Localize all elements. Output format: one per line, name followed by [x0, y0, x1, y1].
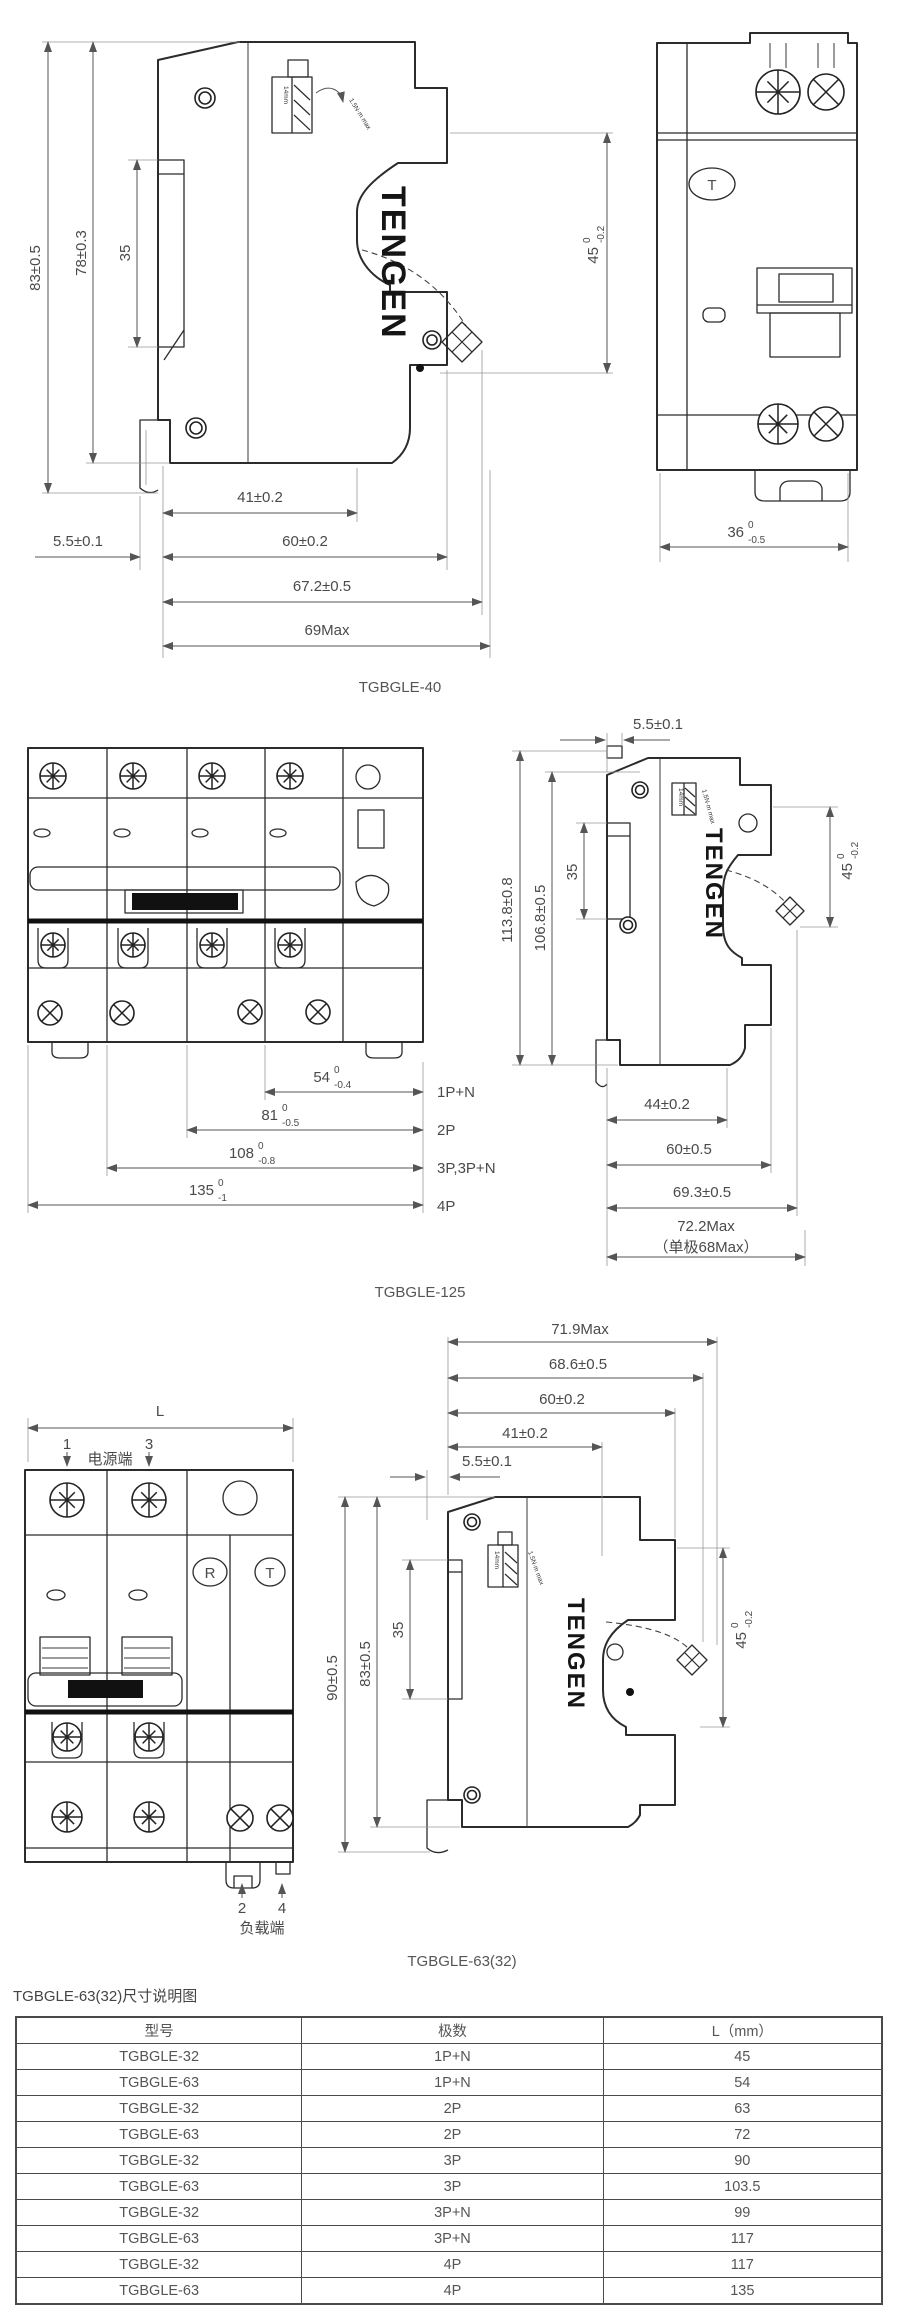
cell-length: 99	[603, 2200, 882, 2226]
drawing-tgbgle-125: 54 0 -0.4 81 0 -0.5 108 0 -0.8 135 0 -1 …	[0, 700, 900, 1320]
front-view-tgbgle-40: T 36 0 -0.5	[657, 33, 857, 562]
dim-41-label: 41±0.2	[237, 489, 283, 506]
dim-60-label: 60±0.2	[539, 1391, 585, 1408]
screw-icon	[186, 418, 206, 438]
terminal-screw-icon	[50, 1483, 84, 1517]
dim-35-label: 35	[117, 245, 134, 262]
terminal-screw-icon	[801, 67, 852, 118]
cell-length: 135	[603, 2278, 882, 2305]
cell-poles: 3P+N	[302, 2226, 603, 2252]
svg-text:T: T	[707, 177, 716, 194]
terminal-screw-icon	[301, 995, 335, 1029]
svg-text:-0.8: -0.8	[258, 1156, 276, 1167]
table-row: TGBGLE-323P90	[16, 2148, 882, 2174]
dim-106p8-label: 106.8±0.5	[532, 885, 549, 952]
svg-text:R: R	[205, 1565, 216, 1582]
table-row: TGBGLE-634P135	[16, 2278, 882, 2305]
dim-69max-label: 69Max	[304, 622, 350, 639]
svg-text:0: 0	[836, 853, 847, 859]
dimensions-side-view: 83±0.5 78±0.3 35 45 0 -0.2 41±0.2 5.5±0.…	[27, 42, 613, 658]
table-row: TGBGLE-632P72	[16, 2122, 882, 2148]
terminal-screw-icon	[135, 1723, 163, 1751]
dim-L-label: L	[156, 1403, 164, 1420]
toggle-handle	[757, 268, 852, 357]
terminal-screw-icon	[121, 933, 145, 957]
terminal-screw-icon	[222, 1800, 259, 1837]
svg-text:45: 45	[585, 247, 602, 264]
svg-text:-0.5: -0.5	[282, 1118, 300, 1129]
terminal-screw-icon	[134, 1802, 164, 1832]
terminal-4-label: 4	[278, 1900, 286, 1917]
terminal-screw-icon	[802, 400, 850, 448]
terminal-hole	[356, 765, 380, 789]
dim-81-label: 81 0 -0.5	[261, 1103, 299, 1129]
svg-text:0: 0	[282, 1103, 288, 1114]
table-row: TGBGLE-633P+N117	[16, 2226, 882, 2252]
drawing-tgbgle-40: 14mm 1.5N·m max TENGEN 83±0.5 78±0.3 35 …	[0, 0, 900, 700]
screw-icon	[464, 1787, 480, 1803]
cell-poles: 1P+N	[302, 2070, 603, 2096]
dim-5p5-label: 5.5±0.1	[462, 1453, 512, 1470]
svg-text:-1: -1	[218, 1193, 227, 1204]
terminal-screw-icon	[756, 70, 800, 114]
dim-68p6-label: 68.6±0.5	[549, 1356, 607, 1373]
table-row: TGBGLE-321P+N45	[16, 2044, 882, 2070]
dim-35-label: 35	[390, 1622, 407, 1639]
table-row: TGBGLE-323P+N99	[16, 2200, 882, 2226]
cell-poles: 4P	[302, 2252, 603, 2278]
svg-text:0: 0	[582, 237, 593, 243]
svg-text:36: 36	[727, 524, 744, 541]
brand-logo: TENGEN	[374, 186, 412, 340]
cell-model: TGBGLE-63	[16, 2070, 302, 2096]
toggle-handle-icon	[677, 1645, 707, 1675]
screw-icon	[195, 88, 215, 108]
din-clip	[226, 1862, 290, 1888]
caption-tgbgle-63-32: TGBGLE-63(32)	[407, 1953, 516, 1970]
dim-135-label: 135 0 -1	[189, 1178, 227, 1204]
terminal-screw-icon	[53, 1723, 81, 1751]
cell-model: TGBGLE-32	[16, 2252, 302, 2278]
col-header-length: L（mm）	[603, 2017, 882, 2044]
dim-68max-label: （单极68Max）	[653, 1239, 758, 1256]
terminal-screw-icon	[40, 763, 66, 789]
side-view-tgbgle-63: 14mm 1.5N·m max TENGEN	[427, 1497, 707, 1853]
cell-poles: 2P	[302, 2122, 603, 2148]
dim-36-label: 36 0 -0.5	[727, 520, 765, 546]
cell-poles: 1P+N	[302, 2044, 603, 2070]
front-view-tgbgle-125	[28, 748, 423, 1058]
dim-41-label: 41±0.2	[502, 1425, 548, 1442]
cell-poles: 2P	[302, 2096, 603, 2122]
load-end-label: 负载端	[239, 1920, 284, 1937]
dim-108-label: 108 0 -0.8	[229, 1141, 276, 1167]
line-end-label: 电源端	[87, 1451, 132, 1468]
dimensions-side-view: 71.9Max 68.6±0.5 60±0.2 41±0.2 5.5±0.1 9…	[324, 1321, 755, 1852]
terminal-screw-icon	[132, 1483, 166, 1517]
torque-arrow-icon	[316, 88, 343, 102]
caption-tgbgle-125: TGBGLE-125	[375, 1284, 466, 1301]
din-clip	[52, 1042, 402, 1058]
svg-text:-0.4: -0.4	[334, 1080, 352, 1091]
pole-label-1pn: 1P+N	[437, 1084, 475, 1101]
cell-model: TGBGLE-63	[16, 2174, 302, 2200]
dim-90-label: 90±0.5	[324, 1655, 341, 1701]
dim-54-label: 54 0 -0.4	[313, 1065, 351, 1091]
front-view-tgbgle-63: L 1 3 电源端 R T	[25, 1403, 298, 1937]
svg-text:54: 54	[313, 1069, 330, 1086]
svg-text:-0.2: -0.2	[744, 1610, 755, 1628]
handle-frame	[30, 867, 340, 890]
cell-length: 72	[603, 2122, 882, 2148]
svg-text:45: 45	[733, 1632, 750, 1649]
wire-clamp-detail: 14mm 1.5N·m max	[488, 1532, 545, 1587]
dim-5p5-label: 5.5±0.1	[633, 716, 683, 733]
brand-logo: TENGEN	[700, 828, 727, 940]
terminal-screw-icon	[120, 763, 146, 789]
table-heading: TGBGLE-63(32)尺寸说明图	[13, 1985, 197, 2006]
terminal-3-label: 3	[145, 1436, 153, 1453]
caption-tgbgle-40: TGBGLE-40	[359, 679, 442, 696]
terminal-screw-icon	[105, 996, 139, 1030]
dim-45-label: 45 0 -0.2	[836, 841, 861, 879]
dim-83-label: 83±0.5	[27, 245, 44, 291]
svg-text:0: 0	[748, 520, 754, 531]
toggle-pivot	[416, 364, 424, 372]
toggle-arc	[726, 870, 786, 903]
screw-icon	[464, 1514, 480, 1530]
cell-length: 54	[603, 2070, 882, 2096]
svg-text:T: T	[265, 1565, 274, 1582]
terminal-screw-icon	[278, 933, 302, 957]
svg-text:0: 0	[258, 1141, 264, 1152]
terminal-2-label: 2	[238, 1900, 246, 1917]
terminal-1-label: 1	[63, 1436, 71, 1453]
strip-length-label: 14mm	[493, 1551, 500, 1569]
terminal-screw-icon	[41, 933, 65, 957]
cell-length: 45	[603, 2044, 882, 2070]
dimension-drawing-sheet: 14mm 1.5N·m max TENGEN 83±0.5 78±0.3 35 …	[0, 0, 900, 2311]
dim-60-label: 60±0.2	[282, 533, 328, 550]
toggle-pivot	[739, 814, 757, 832]
cell-model: TGBGLE-63	[16, 2122, 302, 2148]
svg-text:45: 45	[839, 863, 856, 880]
toggle-pivot	[607, 1644, 623, 1660]
strip-length-label: 14mm	[677, 788, 684, 806]
terminal-screw-icon	[277, 763, 303, 789]
drawing-tgbgle-63-32: L 1 3 电源端 R T	[0, 1320, 900, 1980]
cell-poles: 3P	[302, 2148, 603, 2174]
wire-clamp-detail: 14mm 1.5N·m max	[672, 783, 716, 825]
cell-poles: 3P+N	[302, 2200, 603, 2226]
cell-model: TGBGLE-32	[16, 2044, 302, 2070]
dim-60-label: 60±0.5	[666, 1141, 712, 1158]
cell-length: 117	[603, 2252, 882, 2278]
svg-text:0: 0	[218, 1178, 224, 1189]
svg-text:108: 108	[229, 1145, 254, 1162]
torque-label: 1.5N·m max	[700, 789, 716, 826]
svg-text:135: 135	[189, 1182, 214, 1199]
toggle-handle-icon	[776, 897, 804, 925]
svg-text:-0.5: -0.5	[748, 535, 766, 546]
cell-model: TGBGLE-63	[16, 2278, 302, 2305]
dim-71p9-label: 71.9Max	[551, 1321, 609, 1338]
wire-clamp-detail: 14mm 1.5N·m max	[272, 60, 372, 133]
cell-model: TGBGLE-32	[16, 2200, 302, 2226]
din-clip	[755, 470, 850, 501]
indicator-window	[703, 308, 725, 322]
test-button: T	[689, 168, 735, 200]
strip-length-label: 14mm	[282, 86, 289, 104]
terminal-screw-icon	[200, 933, 224, 957]
cell-length: 103.5	[603, 2174, 882, 2200]
svg-text:-0.2: -0.2	[596, 225, 607, 243]
cell-length: 117	[603, 2226, 882, 2252]
dim-69p3-label: 69.3±0.5	[673, 1184, 731, 1201]
terminal-screw-icon	[33, 996, 67, 1030]
cell-length: 63	[603, 2096, 882, 2122]
cell-model: TGBGLE-32	[16, 2096, 302, 2122]
rcd-module	[356, 810, 389, 906]
handle-area	[28, 1637, 182, 1706]
dim-45-label: 45 0 -0.2	[730, 1610, 755, 1648]
table-row: TGBGLE-322P63	[16, 2096, 882, 2122]
dim-67p2-label: 67.2±0.5	[293, 578, 351, 595]
table-header-row: 型号 极数 L（mm）	[16, 2017, 882, 2044]
toggle-handle	[132, 893, 238, 910]
pole-label-2p: 2P	[437, 1122, 455, 1139]
cell-model: TGBGLE-63	[16, 2226, 302, 2252]
screw-icon	[620, 917, 636, 933]
dim-72p2-label: 72.2Max	[677, 1218, 735, 1235]
pole-label-4p: 4P	[437, 1198, 455, 1215]
toggle-handle	[68, 1680, 143, 1698]
screw-icon	[632, 782, 648, 798]
torque-label: 1.5N·m max	[347, 97, 372, 131]
svg-text:0: 0	[334, 1065, 340, 1076]
dim-35-label: 35	[564, 864, 581, 881]
torque-label: 1.5N·m max	[526, 1550, 545, 1586]
test-button: T	[255, 1558, 285, 1586]
dimensions-widths: 54 0 -0.4 81 0 -0.5 108 0 -0.8 135 0 -1 …	[28, 1045, 496, 1215]
brand-logo: TENGEN	[562, 1598, 589, 1710]
table-row: TGBGLE-631P+N54	[16, 2070, 882, 2096]
side-view-tgbgle-125: 14mm 1.5N·m max TENGEN	[596, 746, 804, 1087]
cell-poles: 4P	[302, 2278, 603, 2305]
dimension-table: 型号 极数 L（mm） TGBGLE-321P+N45 TGBGLE-631P+…	[15, 2016, 883, 2305]
dim-78-label: 78±0.3	[73, 230, 90, 276]
terminal-hole	[223, 1481, 257, 1515]
pole-label-3p: 3P,3P+N	[437, 1160, 496, 1177]
side-view-tgbgle-40: 14mm 1.5N·m max TENGEN	[140, 42, 482, 493]
dim-44-label: 44±0.2	[644, 1096, 690, 1113]
col-header-model: 型号	[16, 2017, 302, 2044]
dim-5p5-label: 5.5±0.1	[53, 533, 103, 550]
terminal-screw-icon	[233, 995, 267, 1029]
screw-icon	[423, 331, 441, 349]
svg-text:-0.2: -0.2	[850, 841, 861, 859]
svg-text:81: 81	[261, 1107, 278, 1124]
terminal-screw-icon	[199, 763, 225, 789]
cell-poles: 3P	[302, 2174, 603, 2200]
dim-83-label: 83±0.5	[357, 1641, 374, 1687]
col-header-poles: 极数	[302, 2017, 603, 2044]
reset-button: R	[193, 1558, 227, 1586]
dim-45-label: 45 0 -0.2	[582, 225, 607, 263]
cell-model: TGBGLE-32	[16, 2148, 302, 2174]
terminal-screw-icon	[758, 404, 798, 444]
table-row: TGBGLE-633P103.5	[16, 2174, 882, 2200]
table-row: TGBGLE-324P117	[16, 2252, 882, 2278]
dim-113p8-label: 113.8±0.8	[499, 877, 516, 943]
cell-length: 90	[603, 2148, 882, 2174]
terminal-screw-icon	[52, 1802, 82, 1832]
svg-text:0: 0	[730, 1622, 741, 1628]
